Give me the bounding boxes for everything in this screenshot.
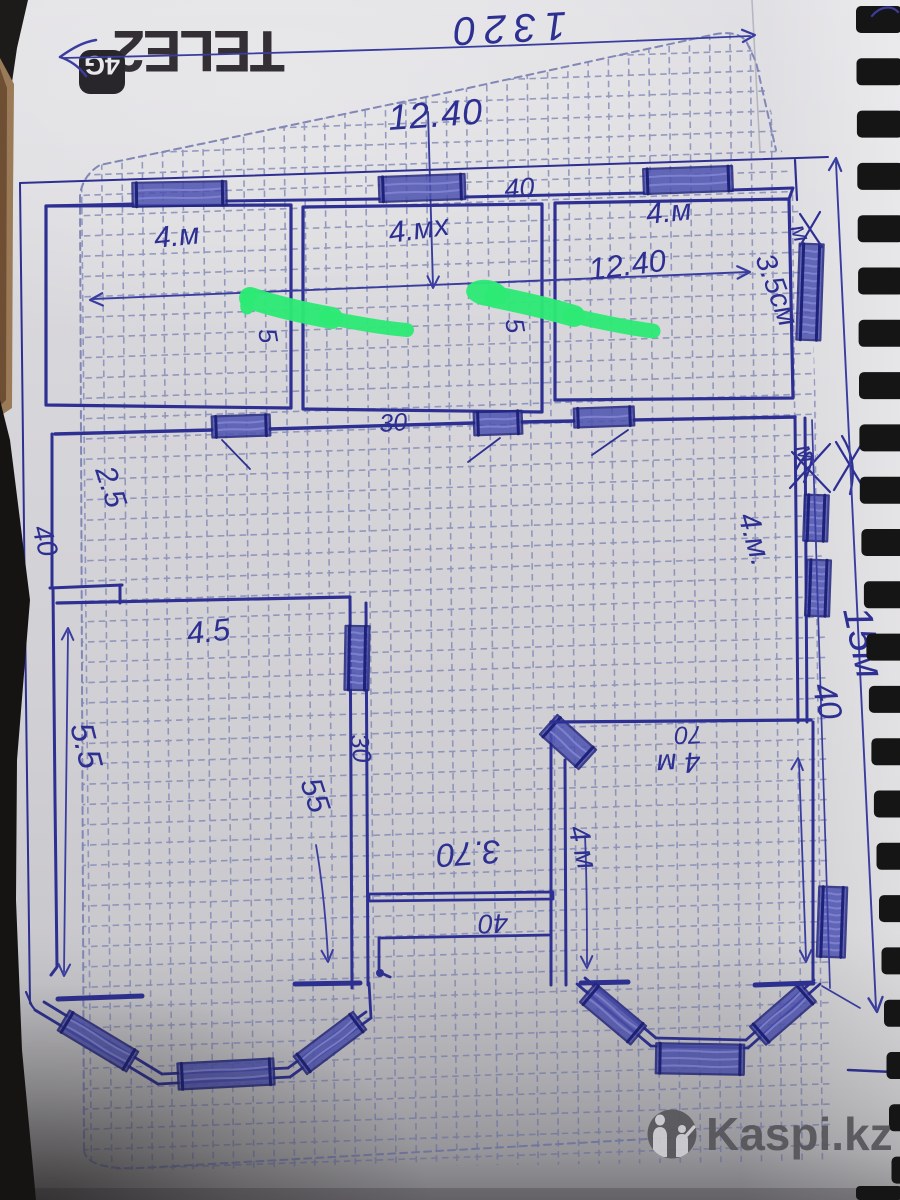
svg-text:12.40: 12.40 — [387, 90, 485, 138]
svg-text:4G: 4G — [84, 50, 120, 80]
svg-text:TELE2: TELE2 — [115, 18, 286, 83]
svg-text:4.5: 4.5 — [185, 612, 232, 651]
svg-text:40: 40 — [503, 172, 535, 204]
svg-text:1320: 1320 — [445, 3, 568, 53]
svg-text:3.70: 3.70 — [435, 833, 502, 874]
svg-text:30: 30 — [344, 732, 378, 765]
svg-text:4.м: 4.м — [644, 193, 693, 231]
svg-text:4.м: 4.м — [152, 217, 201, 255]
svg-text:30: 30 — [378, 408, 408, 438]
svg-text:70: 70 — [674, 720, 703, 749]
svg-text:Kaspi.kz: Kaspi.kz — [706, 1108, 893, 1160]
svg-text:4 м: 4 м — [655, 745, 701, 780]
